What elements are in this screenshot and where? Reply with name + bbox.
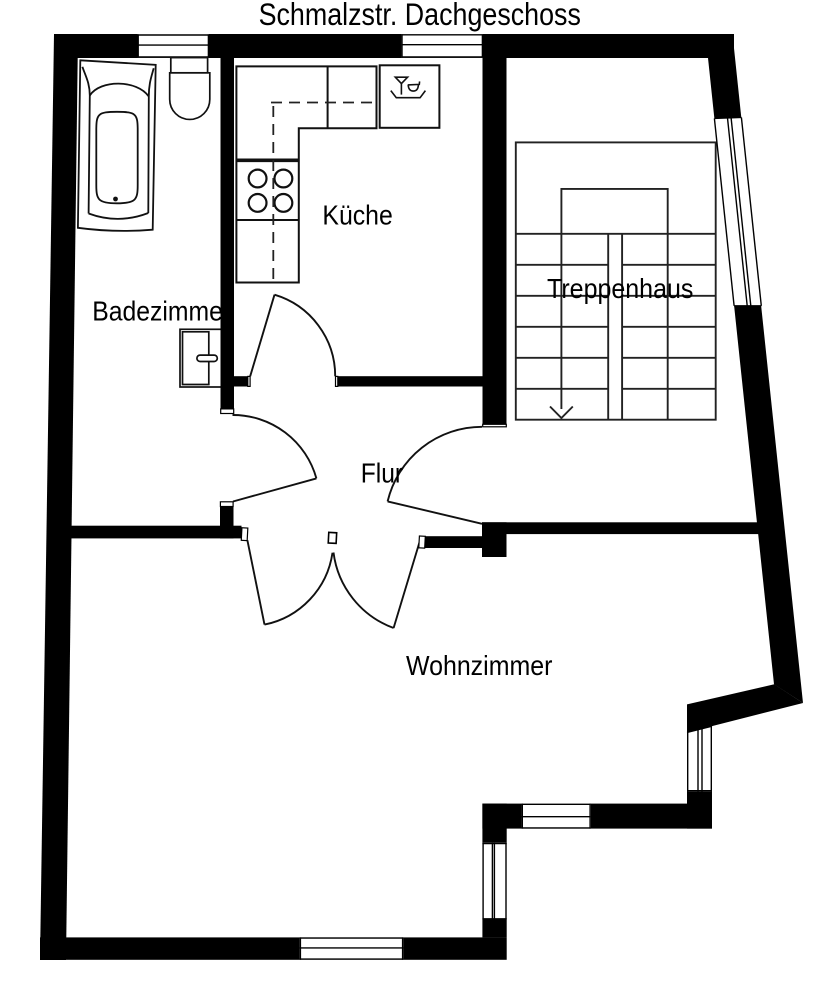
svg-text:Badezimmer: Badezimmer <box>92 296 231 327</box>
svg-text:Flur: Flur <box>361 458 403 489</box>
svg-text:Wohnzimmer: Wohnzimmer <box>406 650 552 681</box>
svg-text:Schmalzstr. Dachgeschoss: Schmalzstr. Dachgeschoss <box>259 0 581 32</box>
svg-text:Treppenhaus: Treppenhaus <box>547 273 693 304</box>
svg-text:Küche: Küche <box>322 199 392 230</box>
